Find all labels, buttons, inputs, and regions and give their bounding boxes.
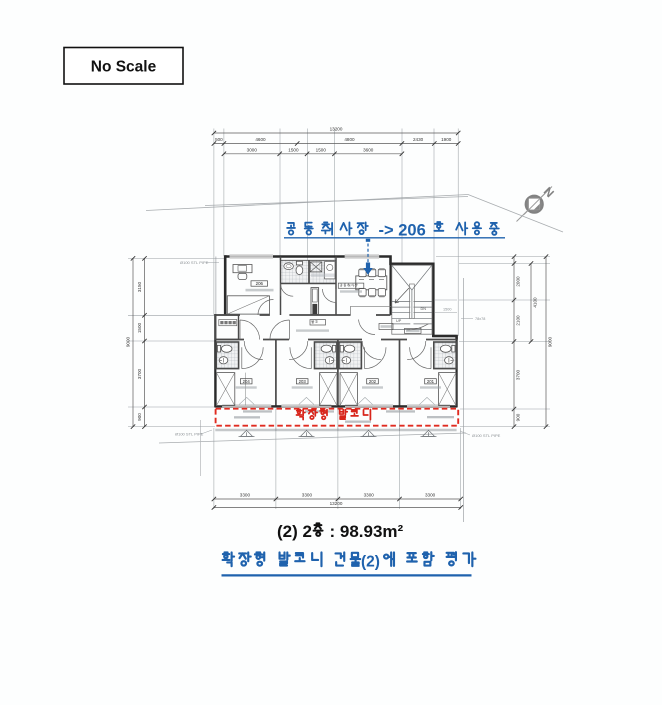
svg-text:204: 204 [243,379,251,384]
svg-text:1900: 1900 [441,137,452,142]
svg-text:: 98.93m²: : 98.93m² [330,522,404,541]
svg-text:3000: 3000 [247,148,258,153]
svg-text:(2): (2) [361,553,380,570]
svg-text:1500: 1500 [137,322,142,333]
svg-text:(2) 2: (2) 2 [277,522,312,541]
svg-text:4600: 4600 [255,137,266,142]
svg-text:3300: 3300 [240,492,251,497]
svg-text:3700: 3700 [516,369,521,380]
svg-text:2100: 2100 [516,315,521,326]
svg-text:DN: DN [421,307,427,311]
svg-text:3300: 3300 [302,492,313,497]
svg-text:Ø100 STL PIPE: Ø100 STL PIPE [175,432,204,437]
svg-text:3700: 3700 [137,368,142,379]
svg-text:3150: 3150 [137,281,142,292]
svg-text:900: 900 [516,413,521,421]
svg-text:UP: UP [396,319,402,323]
svg-text:202: 202 [369,379,377,384]
svg-text:9000: 9000 [126,336,131,347]
svg-text:3300: 3300 [425,492,436,497]
svg-text:1500: 1500 [288,148,299,153]
svg-text:9000: 9000 [548,336,553,347]
svg-text:4800: 4800 [344,137,355,142]
svg-text:3300: 3300 [364,492,375,497]
svg-text:206: 206 [256,281,264,286]
svg-text:500: 500 [215,137,223,142]
svg-text:1500: 1500 [443,308,451,312]
svg-text:201: 201 [427,379,435,384]
svg-text:No Scale: No Scale [91,58,157,75]
svg-text:2000: 2000 [516,276,521,287]
svg-text:3600: 3600 [363,148,374,153]
svg-text:-> 206: -> 206 [379,222,426,240]
svg-text:900: 900 [137,413,142,421]
svg-text:2430: 2430 [413,137,424,142]
svg-text:13200: 13200 [330,501,343,506]
svg-text:Ø100 STL PIPE: Ø100 STL PIPE [472,433,501,438]
svg-text:13200: 13200 [330,127,343,132]
svg-text:203: 203 [299,379,307,384]
svg-text:4100: 4100 [533,297,538,308]
svg-text:Ø100 STL PIPE: Ø100 STL PIPE [180,260,209,265]
svg-text:1500: 1500 [316,148,327,153]
svg-text:78x78: 78x78 [475,317,485,321]
